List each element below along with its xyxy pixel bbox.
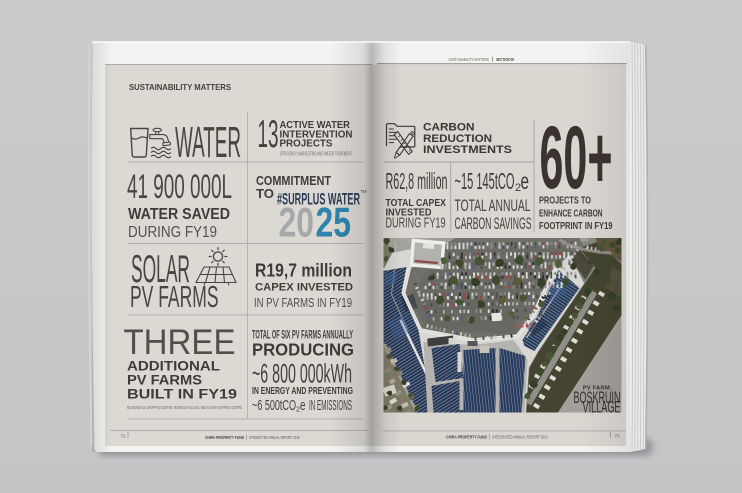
svg-text:72: 72 bbox=[121, 433, 127, 438]
svg-text:WATER: WATER bbox=[175, 118, 241, 167]
svg-text:PV FARMS: PV FARMS bbox=[130, 280, 219, 314]
svg-text:MEADOWDALE SHOPPING CENTRE, BO: MEADOWDALE SHOPPING CENTRE, BOSKRUIN VIL… bbox=[127, 405, 242, 410]
svg-text:SECTION 09: SECTION 09 bbox=[496, 57, 514, 62]
svg-text:DURING FY19: DURING FY19 bbox=[128, 224, 217, 241]
svg-text:THREE: THREE bbox=[124, 322, 236, 362]
svg-text:BUILT IN FY19: BUILT IN FY19 bbox=[127, 387, 237, 402]
svg-text:41 900 000L: 41 900 000L bbox=[127, 168, 232, 206]
svg-text:ADDITIONAL: ADDITIONAL bbox=[127, 359, 220, 374]
svg-text:SUSTAINABILITY MATTERS: SUSTAINABILITY MATTERS bbox=[129, 82, 231, 92]
svg-text:CHIRA PROPERTY FUND: CHIRA PROPERTY FUND bbox=[446, 435, 487, 441]
svg-text:PROJECTS: PROJECTS bbox=[280, 139, 333, 150]
svg-text:e: e bbox=[300, 397, 306, 414]
svg-text:INTEGRATED ANNUAL REPORT 2019: INTEGRATED ANNUAL REPORT 2019 bbox=[493, 435, 548, 441]
svg-text:13: 13 bbox=[258, 113, 279, 156]
svg-text:TO: TO bbox=[256, 186, 274, 201]
svg-text:20: 20 bbox=[279, 199, 315, 246]
svg-text:e: e bbox=[521, 168, 530, 194]
svg-text:CHIRA PROPERTY FUND: CHIRA PROPERTY FUND bbox=[205, 435, 244, 441]
svg-text:INVESTMENTS: INVESTMENTS bbox=[423, 144, 513, 156]
svg-text:~15 145tCO: ~15 145tCO bbox=[455, 168, 515, 194]
svg-text:WATER SAVED: WATER SAVED bbox=[128, 206, 230, 223]
svg-text:PV FARMS: PV FARMS bbox=[127, 373, 202, 388]
svg-text:TOTAL ANNUAL: TOTAL ANNUAL bbox=[455, 196, 531, 215]
svg-text:INTEGRATED ANNUAL REPORT 2019: INTEGRATED ANNUAL REPORT 2019 bbox=[250, 435, 300, 441]
svg-text:SUSTAINABILITY MATTERS: SUSTAINABILITY MATTERS bbox=[449, 57, 490, 62]
svg-text:CARBON SAVINGS: CARBON SAVINGS bbox=[455, 214, 532, 233]
svg-text:CARBON: CARBON bbox=[423, 122, 475, 134]
svg-text:REDUCTION: REDUCTION bbox=[423, 133, 492, 145]
svg-text:~6 500tCO: ~6 500tCO bbox=[252, 397, 296, 414]
